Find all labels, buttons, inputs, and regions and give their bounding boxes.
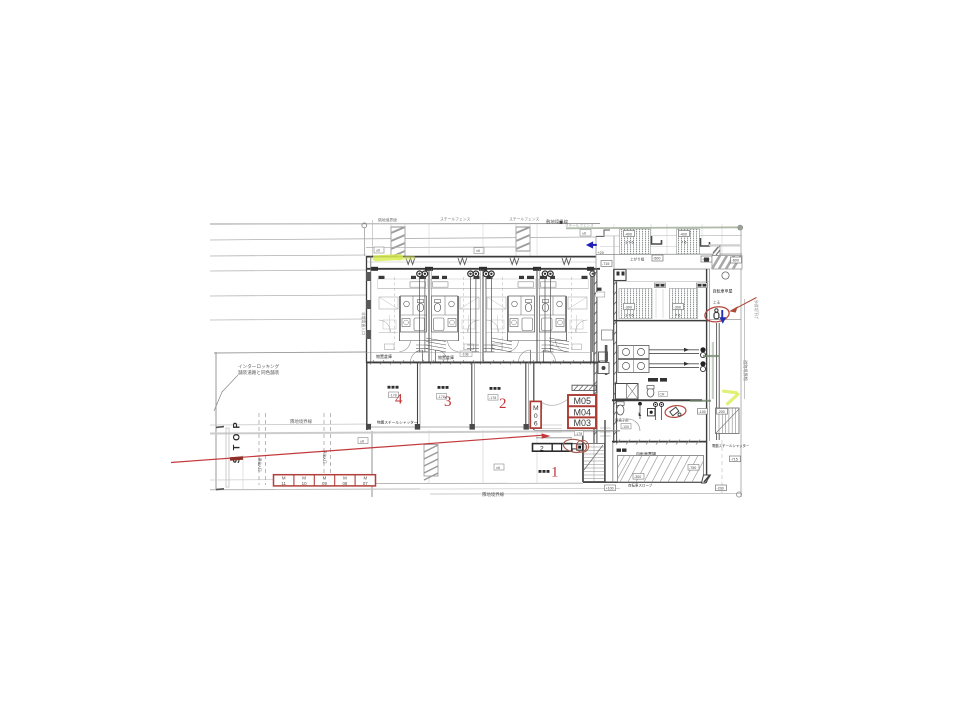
svg-text:2: 2 xyxy=(540,445,544,452)
svg-text:±6: ±6 xyxy=(496,466,500,470)
svg-text:インターロッキング: インターロッキング xyxy=(238,363,280,370)
svg-text:自転車スロープ: 自転車スロープ xyxy=(628,483,653,488)
svg-text:物置スチールシャッター: 物置スチールシャッター xyxy=(377,420,418,425)
svg-text:道路境界線: 道路境界線 xyxy=(742,360,749,382)
svg-text:-178: -178 xyxy=(489,396,496,400)
svg-text:M03: M03 xyxy=(574,418,592,428)
svg-text:上がり框: 上がり框 xyxy=(630,256,645,261)
svg-text:-500: -500 xyxy=(653,257,660,261)
svg-text:±6: ±6 xyxy=(360,439,364,443)
svg-text:2: 2 xyxy=(499,396,507,412)
svg-text:11: 11 xyxy=(281,481,286,486)
svg-text:-108: -108 xyxy=(462,352,469,356)
svg-text:+100: +100 xyxy=(606,487,614,491)
svg-text:電動スチールシャッター: 電動スチールシャッター xyxy=(712,443,750,448)
svg-text:0: 0 xyxy=(534,413,538,420)
svg-text:歩道切下げ: 歩道切下げ xyxy=(754,300,759,319)
svg-text:6: 6 xyxy=(534,421,538,428)
svg-text:M04: M04 xyxy=(574,407,592,417)
svg-text:隣地境界線: 隣地境界線 xyxy=(482,491,505,498)
svg-text:7 6: 7 6 xyxy=(675,312,680,317)
svg-text:1 7 6: 1 7 6 xyxy=(625,312,634,317)
svg-text:-400: -400 xyxy=(625,232,632,236)
svg-text:隣地境界線: 隣地境界線 xyxy=(378,218,397,223)
svg-text:O: O xyxy=(231,434,242,441)
svg-text:物置倉庫: 物置倉庫 xyxy=(438,354,454,360)
svg-text:-400: -400 xyxy=(680,232,687,236)
svg-text:±6: ±6 xyxy=(376,249,380,253)
svg-text:-100: -100 xyxy=(622,425,629,429)
svg-text:T: T xyxy=(231,444,242,450)
svg-text:スチールフェンス: スチールフェンス xyxy=(440,217,471,222)
svg-text:CR: CR xyxy=(660,393,665,397)
svg-text:4: 4 xyxy=(395,392,403,408)
svg-text:-178: -178 xyxy=(575,432,582,436)
svg-text:1: 1 xyxy=(551,465,559,481)
svg-text:-200: -200 xyxy=(717,487,724,491)
svg-text:-600: -600 xyxy=(732,259,739,263)
svg-text:-300: -300 xyxy=(674,305,681,309)
svg-text:非常用進入口: 非常用進入口 xyxy=(361,312,366,335)
svg-text:車椅子用: 車椅子用 xyxy=(615,418,629,423)
svg-text:自転車甲屋: 自転車甲屋 xyxy=(713,288,733,294)
svg-text:スチールフェンス: スチールフェンス xyxy=(509,217,540,222)
svg-text:-715: -715 xyxy=(731,458,738,462)
svg-text:3: 3 xyxy=(444,394,452,410)
svg-text:7 6: 7 6 xyxy=(681,240,686,245)
svg-text:1 7 6: 1 7 6 xyxy=(625,240,634,245)
svg-text:物置倉庫: 物置倉庫 xyxy=(376,353,392,359)
svg-text:±6: ±6 xyxy=(476,249,480,253)
svg-text:M05: M05 xyxy=(574,396,592,406)
svg-text:車出入口: 車出入口 xyxy=(257,458,262,472)
svg-text:08: 08 xyxy=(342,481,347,486)
svg-text:09: 09 xyxy=(322,481,327,486)
svg-text:-750: -750 xyxy=(689,466,696,470)
svg-text:07: 07 xyxy=(363,481,368,486)
svg-text:-100: -100 xyxy=(699,410,706,414)
svg-text:±6: ±6 xyxy=(582,231,586,235)
svg-text:-200: -200 xyxy=(718,410,725,414)
svg-text:M: M xyxy=(533,405,539,412)
svg-text:スチールフェンス: スチールフェンス xyxy=(565,223,594,228)
svg-text:上る: 上る xyxy=(713,300,721,305)
svg-text:車出入口: 車出入口 xyxy=(322,450,327,464)
svg-text:隣地境界線: 隣地境界線 xyxy=(290,418,313,425)
svg-text:-300: -300 xyxy=(625,305,632,309)
svg-text:-300: -300 xyxy=(634,475,641,479)
svg-text:-715: -715 xyxy=(602,262,609,266)
svg-text:舗装道路と同色舗装: 舗装道路と同色舗装 xyxy=(238,369,280,376)
svg-text:P: P xyxy=(231,422,242,428)
svg-text:10: 10 xyxy=(302,481,307,486)
